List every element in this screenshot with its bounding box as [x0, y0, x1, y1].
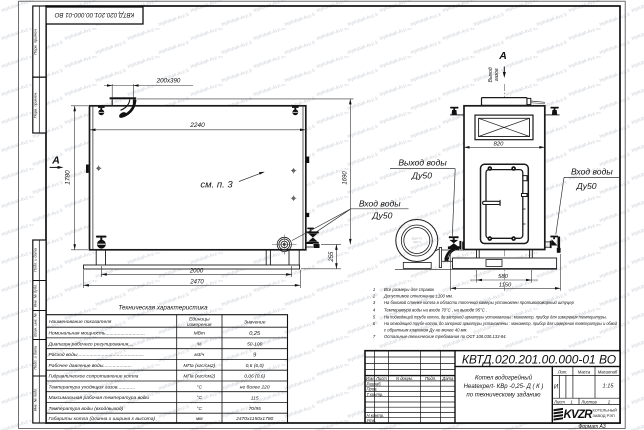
svg-text:Габариты котла (длинна х ширин: Габариты котла (длинна х ширина х высота… — [49, 416, 156, 422]
svg-text:0,25: 0,25 — [249, 331, 261, 337]
svg-text:50-100: 50-100 — [247, 342, 263, 348]
svg-text:А: А — [51, 155, 60, 167]
svg-text:Инв. № подл.: Инв. № подл. — [34, 388, 38, 412]
svg-text:Утв.: Утв. — [367, 418, 377, 423]
svg-text:Изм: Изм — [366, 376, 374, 381]
svg-text:Ду50: Ду50 — [411, 171, 432, 181]
svg-text:1: 1 — [373, 287, 375, 292]
svg-text:1780: 1780 — [65, 170, 72, 185]
svg-text:°С: °С — [197, 406, 203, 412]
svg-text:Вход воды: Вход воды — [359, 199, 401, 209]
svg-text:KVZR: KVZR — [564, 409, 594, 421]
svg-text:0,6 (6,0): 0,6 (6,0) — [246, 363, 265, 369]
svg-text:1:15: 1:15 — [603, 384, 615, 390]
svg-text:Пров.: Пров. — [367, 387, 378, 392]
svg-text:Т.контр.: Т.контр. — [367, 392, 384, 397]
svg-text:Heatexpert- КВр -0,25- Д ( К ): Heatexpert- КВр -0,25- Д ( К ) — [464, 384, 544, 390]
svg-text:Максимальная рабочая температу: Максимальная рабочая температура воды — [49, 395, 150, 401]
svg-text:580: 580 — [498, 274, 508, 280]
svg-text:МВт: МВт — [194, 331, 205, 337]
svg-text:Котел водогрейный: Котел водогрейный — [475, 374, 533, 381]
svg-text:Температура уходящих газов....: Температура уходящих газов............. — [49, 384, 136, 390]
svg-text:КВТД.020.201.00.000-01 ВО: КВТД.020.201.00.000-01 ВО — [55, 11, 135, 18]
svg-text:255: 255 — [329, 251, 335, 263]
svg-text:На подводящей трубе котла, до: На подводящей трубе котла, до запорной а… — [384, 314, 607, 319]
svg-text:Лист: Лист — [375, 376, 387, 381]
svg-text:Взам. инв. №: Взам. инв. № — [34, 313, 38, 336]
svg-text:Листов: Листов — [580, 399, 597, 404]
svg-text:820: 820 — [494, 141, 504, 147]
svg-text:Перв. примен.: Перв. примен. — [33, 28, 38, 55]
svg-text:Температура воды (вход/выход): Температура воды (вход/выход) — [49, 406, 124, 412]
svg-text:115: 115 — [251, 395, 259, 401]
svg-text:мм: мм — [196, 417, 203, 422]
svg-text:Масштаб: Масштаб — [598, 369, 618, 374]
svg-text:Формат А3: Формат А3 — [578, 424, 606, 430]
svg-text:На отводящей трубе котла, до з: На отводящей трубе котла, до запорной ар… — [384, 321, 618, 326]
svg-text:°С: °С — [197, 384, 203, 390]
svg-text:200х390: 200х390 — [156, 78, 181, 85]
svg-text:Допустимое отклонение ±100 мм: Допустимое отклонение ±100 мм. — [383, 294, 453, 299]
svg-text:м3/ч: м3/ч — [194, 352, 204, 358]
svg-text:Температура воды на входе 70°: Температура воды на входе 70°С , на выхо… — [384, 307, 487, 312]
svg-text:Ду50: Ду50 — [371, 211, 392, 221]
svg-text:Все размеры для справок: Все размеры для справок — [384, 287, 435, 292]
svg-text:Инв. № дубл.: Инв. № дубл. — [34, 284, 38, 307]
svg-text:газов: газов — [494, 68, 500, 81]
svg-text:по техническому заданию: по техническому заданию — [466, 393, 541, 399]
svg-text:Подп.: Подп. — [425, 376, 436, 381]
svg-text:Лист: Лист — [553, 399, 565, 404]
svg-text:ЗАВОД РЭП: ЗАВОД РЭП — [593, 413, 615, 418]
svg-text:А: А — [498, 50, 507, 62]
svg-text:Техническая характеристика: Техническая характеристика — [118, 305, 208, 312]
svg-text:Масса: Масса — [578, 369, 591, 374]
svg-text:Гидравлическое сопротивление к: Гидравлическое сопротивление котла — [49, 374, 139, 380]
svg-text:2240: 2240 — [189, 122, 205, 129]
svg-text:9: 9 — [253, 352, 256, 358]
svg-text:Значение: Значение — [244, 320, 266, 326]
svg-text:Разраб.: Разраб. — [367, 381, 382, 386]
svg-text:Наименование показателя: Наименование показателя — [49, 319, 112, 325]
svg-text:МПа (кгс/см2): МПа (кгс/см2) — [183, 374, 215, 380]
svg-text:0,06 (0,6): 0,06 (0,6) — [244, 374, 265, 380]
svg-text:не более 220: не более 220 — [240, 384, 270, 390]
svg-text:N докум.: N докум. — [396, 376, 413, 381]
svg-text:Подп. и дата: Подп. и дата — [34, 346, 38, 370]
svg-text:2000: 2000 — [189, 269, 204, 275]
svg-text:70/95: 70/95 — [249, 406, 262, 412]
svg-text:Выход воды: Выход воды — [398, 157, 447, 167]
svg-text:На боковой стенке котла в обла: На боковой стенке котла в области топочн… — [384, 300, 575, 305]
svg-text:Расход воды...................: Расход воды.............................… — [49, 352, 145, 358]
svg-text:№2,5: №2,5 — [413, 240, 421, 244]
svg-text:%: % — [197, 341, 202, 347]
svg-text:Единицы: Единицы — [189, 317, 210, 323]
svg-text:1690: 1690 — [343, 171, 349, 185]
svg-text:Номинальная мощность..........: Номинальная мощность....................… — [49, 331, 146, 337]
svg-text:МПа (кгс/см2): МПа (кгс/см2) — [183, 363, 215, 369]
svg-text:1: 1 — [570, 399, 572, 404]
svg-text:2470х1150х1780: 2470х1150х1780 — [235, 416, 273, 422]
svg-text:Дата: Дата — [441, 376, 454, 381]
svg-text:с обратным клапаном Ду не мен: с обратным клапаном Ду не менее 40 мм. — [384, 328, 468, 333]
svg-text:Лит.: Лит. — [557, 369, 568, 374]
svg-text:Остальные технические требован: Остальные технические требования по ОСТ … — [384, 334, 507, 339]
svg-text:2470: 2470 — [189, 280, 204, 286]
svg-text:Рабочее давление воды.........: Рабочее давление воды...................… — [49, 363, 132, 369]
svg-text:°С: °С — [197, 395, 203, 401]
svg-text:см. п. 3: см. п. 3 — [200, 180, 233, 191]
svg-text:КОТЕЛЬНЫЙ: КОТЕЛЬНЫЙ — [593, 407, 618, 412]
svg-text:Ду50: Ду50 — [576, 181, 597, 191]
svg-text:Вход воды: Вход воды — [571, 167, 613, 177]
svg-text:измерения: измерения — [187, 323, 212, 328]
svg-text:КВТД.020.201.00.000-01 ВО: КВТД.020.201.00.000-01 ВО — [462, 352, 616, 366]
svg-text:Подп. и дата: Подп. и дата — [34, 248, 38, 272]
svg-text:Перв. примен.: Перв. примен. — [33, 92, 38, 119]
svg-text:И: И — [554, 385, 559, 391]
svg-text:Диапазон рабочего регулировани: Диапазон рабочего регулирования.... — [48, 341, 134, 347]
svg-text:1150: 1150 — [499, 283, 512, 289]
